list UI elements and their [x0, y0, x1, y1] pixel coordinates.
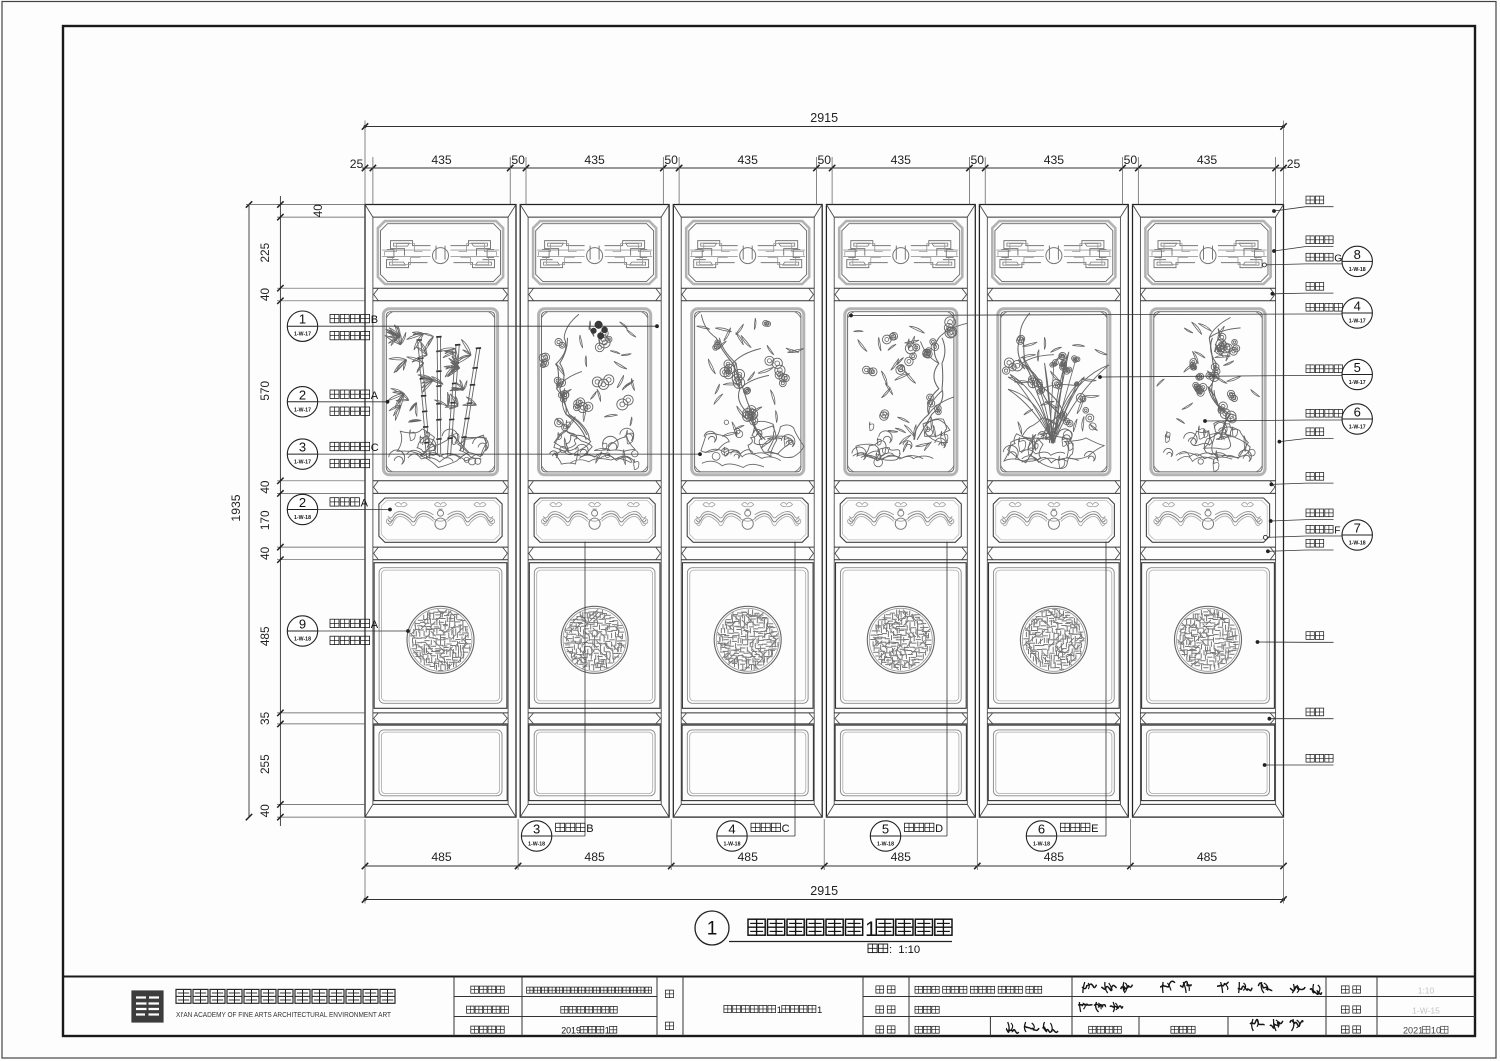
svg-text:E: E: [1091, 823, 1098, 835]
svg-text:50: 50: [971, 153, 985, 167]
svg-text:485: 485: [584, 850, 605, 864]
svg-text:1935: 1935: [229, 494, 243, 521]
svg-text:1-W-18: 1-W-18: [1033, 842, 1050, 848]
svg-text:435: 435: [891, 153, 912, 167]
svg-text:170: 170: [258, 510, 272, 530]
svg-text:1-W-17: 1-W-17: [294, 407, 311, 413]
svg-text:1: 1: [865, 918, 877, 941]
svg-text:570: 570: [258, 381, 272, 401]
svg-text:2: 2: [299, 387, 306, 402]
svg-text:25: 25: [1287, 157, 1301, 171]
svg-text:1-W-18: 1-W-18: [528, 842, 545, 848]
svg-text:5: 5: [882, 822, 889, 837]
svg-text:435: 435: [1044, 153, 1065, 167]
svg-text:435: 435: [738, 153, 759, 167]
svg-text:40: 40: [258, 288, 272, 302]
svg-text:485: 485: [738, 850, 759, 864]
svg-text:485: 485: [1044, 850, 1065, 864]
svg-text:2021: 2021: [1403, 1026, 1423, 1036]
svg-text:40: 40: [258, 480, 272, 494]
svg-text:1-W-18: 1-W-18: [294, 515, 311, 521]
svg-text:1-W-17: 1-W-17: [1349, 380, 1366, 386]
svg-text:1-W-18: 1-W-18: [1349, 267, 1366, 273]
svg-text:25: 25: [350, 157, 364, 171]
svg-text:485: 485: [431, 850, 452, 864]
svg-text:XI'AN ACADEMY OF FINE ARTS ARC: XI'AN ACADEMY OF FINE ARTS ARCHITECTURAL…: [176, 1010, 391, 1019]
svg-text:1-W-17: 1-W-17: [1349, 425, 1366, 431]
svg-text:40: 40: [311, 204, 325, 218]
svg-text:1-W-17: 1-W-17: [294, 460, 311, 466]
svg-text:1-W-17: 1-W-17: [1349, 319, 1366, 325]
svg-text::: :: [889, 944, 892, 956]
svg-text:9: 9: [299, 617, 306, 632]
svg-text:G: G: [1334, 253, 1342, 264]
svg-text:50: 50: [818, 153, 832, 167]
svg-text:1-W-18: 1-W-18: [877, 842, 894, 848]
svg-text:485: 485: [1197, 850, 1218, 864]
svg-text:5: 5: [1354, 360, 1361, 375]
svg-text:1: 1: [777, 1005, 782, 1016]
svg-text:435: 435: [1197, 153, 1218, 167]
svg-text:1: 1: [605, 1026, 610, 1036]
svg-text:8: 8: [1354, 247, 1361, 262]
svg-text:A: A: [371, 390, 379, 402]
svg-text:1:10: 1:10: [1418, 986, 1435, 996]
svg-text:B: B: [586, 823, 593, 835]
svg-text:10: 10: [1431, 1026, 1441, 1036]
svg-text:1-W-18: 1-W-18: [294, 637, 311, 643]
svg-text:50: 50: [511, 153, 525, 167]
svg-text:3: 3: [533, 822, 540, 837]
svg-text:485: 485: [891, 850, 912, 864]
svg-text:1:10: 1:10: [898, 944, 920, 956]
svg-text:50: 50: [664, 153, 678, 167]
svg-text:A: A: [361, 498, 369, 510]
svg-text:1: 1: [707, 919, 718, 940]
svg-text:4: 4: [728, 822, 735, 837]
svg-text:2915: 2915: [810, 884, 838, 898]
svg-text:2915: 2915: [810, 111, 838, 125]
svg-text:1-W-18: 1-W-18: [1349, 541, 1366, 547]
svg-text:F: F: [1334, 526, 1340, 537]
svg-text:6: 6: [1354, 405, 1361, 420]
svg-text:225: 225: [258, 242, 272, 262]
svg-text:B: B: [371, 314, 378, 326]
svg-text:D: D: [935, 823, 943, 835]
svg-text:3: 3: [299, 440, 306, 455]
svg-text:40: 40: [258, 804, 272, 818]
svg-text:2: 2: [299, 495, 306, 510]
svg-text:1-W-17: 1-W-17: [294, 332, 311, 338]
svg-text:7: 7: [1354, 521, 1361, 536]
svg-text:35: 35: [258, 711, 272, 725]
svg-text:1-W-18: 1-W-18: [724, 842, 741, 848]
svg-text:C: C: [371, 442, 379, 454]
svg-text:435: 435: [431, 153, 452, 167]
svg-text:435: 435: [584, 153, 605, 167]
svg-text:4: 4: [1354, 299, 1361, 314]
svg-text:40: 40: [258, 546, 272, 560]
svg-text:1: 1: [817, 1005, 822, 1016]
svg-text:1-W-15: 1-W-15: [1412, 1006, 1440, 1016]
svg-text:A: A: [371, 619, 379, 631]
svg-text:C: C: [782, 823, 790, 835]
svg-text:255: 255: [258, 754, 272, 774]
svg-text:50: 50: [1124, 153, 1138, 167]
svg-text:1: 1: [299, 312, 306, 327]
svg-text:485: 485: [258, 626, 272, 646]
svg-text:6: 6: [1038, 822, 1045, 837]
svg-text:2019: 2019: [561, 1026, 581, 1036]
